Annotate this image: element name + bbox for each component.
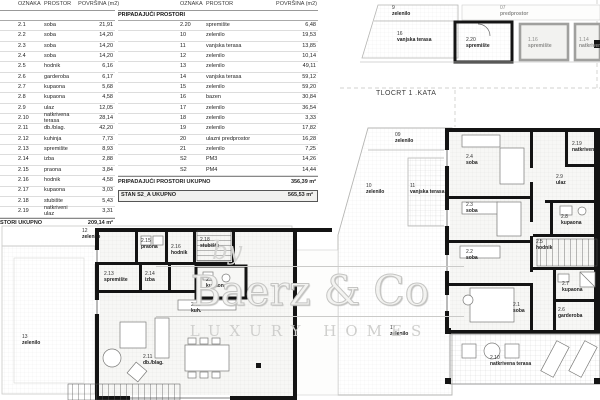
fragment-label: 2.20spremište [466,38,490,50]
room-label: 2.9ulaz [556,175,566,187]
room-label: 2.2soba [466,250,478,262]
outdoor-label: 12zelenilo [82,229,100,241]
room-label: 2.3soba [466,203,478,215]
room-label: 2.5hodnik [536,240,552,252]
room-label: 2.11db./blag. [143,355,164,367]
stairs-bottom [68,384,180,400]
floor-plan-sheet: OZNAKA PROSTOR POVRŠINA (m2) TORI 2.1sob… [0,0,600,400]
plan-title: TLOCRT 1 .KATA [376,90,436,97]
right-plan [338,128,600,395]
outdoor-label: 13zelenilo [22,335,40,347]
room-label: 2.13spremište [104,272,128,284]
room-label: 2.12kuh. [191,303,201,315]
room-label: 2.10natkrivena terasa [490,356,531,368]
room-label: 2.18stubište [200,238,219,250]
middle-garden [296,250,338,395]
room-label: 2.8kupaona [561,215,582,227]
room-label: 2.15praona [141,239,158,251]
room-label: 2.1soba [513,303,525,315]
outdoor-label: 11vanjska terasa [410,184,444,196]
outdoor-label: 10zelenilo [366,184,384,196]
fragment-label: 16vanjska terasa [397,32,431,44]
left-plan [2,226,332,400]
outdoor-label: 17zelenilo [390,326,408,338]
room-label: 2.7kupaona [562,282,583,294]
room-label: 2.4soba [466,155,478,167]
room-label: 2.6garderoba [558,308,582,320]
floor-plan-drawing [0,0,600,400]
fragment-label: 1.14natkriveni [579,38,600,50]
fragment-label: 07predprostor [500,6,528,18]
room-label: 2.19natkriveni [572,142,596,154]
fragment-label: 1.16spremište [528,38,552,50]
outdoor-label: 09zelenilo [395,133,413,145]
room-label: 2.17kupaona [206,278,227,290]
fragment-label: 9zelenilo [392,6,410,18]
room-label: 2.14izba [145,272,155,284]
room-label: 2.16hodnik [171,245,187,257]
